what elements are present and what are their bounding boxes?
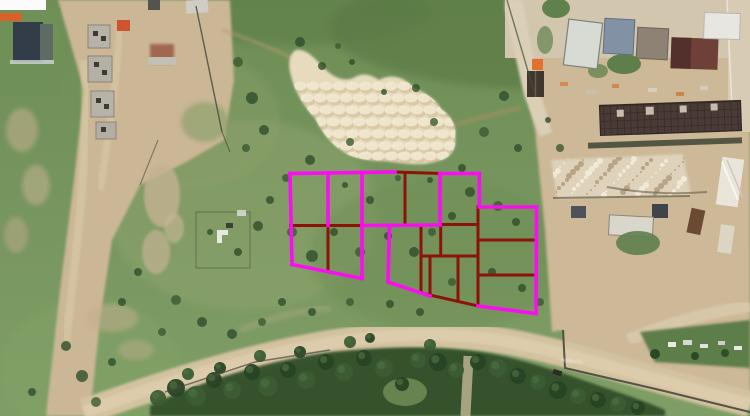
tree-crown-highlight: [633, 403, 639, 409]
orange-roof-strip: [0, 13, 22, 21]
window-hole: [96, 98, 101, 103]
rubble-dot: [647, 180, 649, 182]
marking-dot: [574, 361, 576, 363]
rubble-dot: [563, 162, 565, 164]
debris-dot: [676, 92, 684, 96]
opening: [617, 110, 624, 117]
debris-dot: [586, 90, 596, 94]
tree-crown-highlight: [532, 376, 539, 383]
sand-ripple: [366, 142, 379, 151]
bush: [108, 358, 116, 366]
tree-crown-highlight: [366, 334, 371, 339]
rubble-dot: [585, 170, 591, 176]
bush: [448, 278, 456, 286]
tree-crown-highlight: [346, 338, 351, 343]
white-hut: [217, 235, 222, 243]
bush: [259, 125, 269, 135]
window-hole: [104, 104, 109, 109]
rubble-dot: [571, 192, 573, 194]
dirt-patch: [22, 165, 50, 205]
marking-dot: [566, 360, 569, 363]
bush: [318, 62, 326, 70]
sand-ripple: [405, 142, 418, 151]
bush: [545, 117, 551, 123]
sand-ripple: [327, 118, 340, 127]
bush: [258, 318, 266, 326]
bush: [305, 155, 315, 165]
white-building: [704, 12, 741, 39]
rubble-dot: [659, 168, 661, 170]
vehicle: [668, 342, 676, 347]
dirt-patch: [164, 213, 184, 243]
grass-wedge: [181, 102, 229, 142]
bush: [514, 144, 522, 152]
sand-ripple: [398, 130, 411, 139]
tree-crown-highlight: [472, 356, 479, 363]
tree-crown-highlight: [377, 361, 385, 369]
rubble-dot: [582, 159, 584, 161]
rubble-dot: [622, 169, 626, 173]
wall-edge: [10, 60, 54, 64]
house-annex: [40, 24, 53, 60]
tree-crown-highlight: [261, 379, 270, 388]
debris-dot: [648, 88, 657, 92]
bush: [197, 317, 207, 327]
rubble-dot: [605, 190, 607, 192]
bush: [61, 341, 71, 351]
bush: [295, 37, 305, 47]
bush: [346, 298, 354, 306]
sand-ripple: [346, 82, 359, 91]
tree-crown-highlight: [412, 354, 419, 361]
parcel-boundary-line[interactable]: [362, 225, 440, 226]
sand-ripple: [340, 94, 353, 103]
tree-crown-highlight: [282, 364, 289, 371]
tree: [691, 352, 699, 360]
rubble-dot: [590, 189, 592, 191]
tree-crown-highlight: [592, 394, 599, 401]
bush: [556, 144, 564, 152]
sand-ripple: [372, 106, 385, 115]
rubble-dot: [572, 187, 576, 191]
bush: [458, 164, 466, 172]
sand-ripple: [359, 130, 372, 139]
bush: [207, 229, 213, 235]
maroon-building-dark-half: [670, 37, 691, 69]
tree-crown-highlight: [189, 389, 198, 398]
bush: [118, 298, 126, 306]
vehicle: [718, 341, 725, 345]
sand-ripple: [411, 152, 424, 161]
rubble-dot: [674, 169, 676, 171]
tree-crown-highlight: [296, 348, 301, 353]
bush: [158, 328, 166, 336]
rubble-dot: [561, 182, 565, 186]
window-hole: [94, 62, 99, 67]
vehicle: [734, 346, 742, 350]
sand-ripple: [385, 106, 398, 115]
bush: [227, 329, 237, 339]
window-hole: [102, 70, 107, 75]
rubble-dot: [557, 186, 561, 190]
bush: [134, 268, 142, 276]
rubble-dot: [678, 165, 680, 167]
dirt-patch: [118, 340, 154, 360]
white-warehouse: [563, 19, 602, 69]
sand-ripple: [346, 106, 359, 115]
rubble-dot: [608, 163, 614, 169]
concrete-pad: [148, 57, 176, 65]
sand-ripple: [320, 106, 333, 115]
tree-crown-highlight: [320, 356, 327, 363]
sand-ripple: [333, 82, 346, 91]
grass-pocket: [537, 26, 553, 54]
sand-ripple: [359, 106, 372, 115]
dark-object: [226, 223, 233, 228]
bush: [76, 370, 88, 382]
rubble-dot: [624, 187, 626, 189]
rubble-dot: [626, 165, 630, 169]
orange-building: [532, 59, 543, 70]
parcel-boundary-line[interactable]: [536, 207, 537, 314]
rubble-dot: [655, 172, 657, 174]
bush: [330, 228, 338, 236]
dirt-patch: [6, 108, 38, 152]
rubble-dot: [640, 171, 642, 173]
window-hole: [93, 31, 98, 36]
rubble-dot: [594, 185, 596, 187]
bush: [512, 218, 520, 226]
sand-ripple: [392, 142, 405, 151]
bush: [465, 187, 475, 197]
rubble-dot: [580, 179, 584, 183]
bush: [349, 59, 355, 65]
blue-roof-house: [603, 18, 635, 55]
bush: [395, 175, 401, 181]
bush: [366, 196, 374, 204]
bush: [412, 84, 420, 92]
white-object: [237, 210, 246, 216]
sand-ripple: [372, 152, 385, 161]
sand-ripple: [418, 118, 431, 127]
rubble-dot: [618, 173, 622, 177]
sand-ripple: [379, 118, 392, 127]
sand-ripple: [424, 106, 437, 115]
rubble-dot: [628, 183, 630, 185]
rubble-dot: [576, 183, 580, 187]
sand-ripple: [301, 94, 314, 103]
sand-ripple: [398, 82, 411, 91]
bush: [266, 196, 274, 204]
tree-crown-highlight: [450, 364, 457, 371]
sand-ripple: [424, 130, 437, 139]
sand-ripple: [353, 142, 366, 151]
sand-ripple: [385, 82, 398, 91]
white-hut: [217, 230, 228, 235]
bush: [381, 89, 387, 95]
sand-ripple: [431, 142, 444, 151]
green-yard: [616, 231, 660, 255]
bush: [171, 295, 181, 305]
tree-crown-highlight: [246, 366, 253, 373]
bush: [479, 127, 489, 137]
tree-crown-highlight: [184, 370, 189, 375]
sand-ripple: [385, 130, 398, 139]
orange-shack: [117, 20, 130, 31]
parcel-boundary-line[interactable]: [290, 174, 292, 265]
marking-dot: [579, 361, 582, 364]
rubble-dot: [677, 180, 683, 186]
rubble-dot: [670, 173, 672, 175]
rubble-dot: [559, 166, 561, 168]
lot-line[interactable]: [395, 172, 440, 174]
window-hole: [101, 36, 106, 41]
opening: [646, 107, 654, 115]
tree: [721, 349, 729, 357]
bush: [342, 182, 348, 188]
window-hole: [101, 127, 106, 132]
dark-shack: [148, 0, 160, 10]
sand-ripple: [379, 142, 392, 151]
dirt-patch: [4, 217, 28, 253]
sand-ripple: [366, 94, 379, 103]
bush: [346, 138, 354, 146]
tree-crown-highlight: [431, 355, 439, 363]
bush: [278, 298, 286, 306]
rubble-dot: [603, 172, 607, 176]
rubble-dot: [631, 156, 637, 162]
bush: [233, 57, 243, 67]
tree-crown-highlight: [152, 392, 159, 399]
debris-dot: [560, 82, 568, 86]
sand-ripple: [405, 94, 418, 103]
parcel-boundary-line[interactable]: [290, 172, 395, 174]
bush: [448, 212, 456, 220]
rubble-dot: [651, 176, 653, 178]
satellite-map-viewport[interactable]: [0, 0, 750, 416]
sand-ripple: [340, 118, 353, 127]
bush: [335, 43, 341, 49]
sand-ripple: [411, 106, 424, 115]
parcel-boundary-line[interactable]: [388, 226, 390, 283]
sand-ripple: [392, 118, 405, 127]
bush: [386, 300, 394, 308]
tree-crown-highlight: [512, 370, 519, 377]
rubble-dot: [632, 179, 634, 181]
debris-dot: [700, 86, 708, 90]
sand-ripple: [372, 82, 385, 91]
bush: [253, 221, 263, 231]
bush: [91, 397, 101, 407]
bush: [246, 92, 258, 104]
sand-ripple: [353, 118, 366, 127]
sand-ripple: [392, 94, 405, 103]
rubble-dot: [649, 158, 653, 162]
bush: [499, 91, 509, 101]
rubble-dot: [636, 175, 638, 177]
rubble-dot: [645, 162, 649, 166]
sand-ripple: [314, 94, 327, 103]
bush: [28, 388, 36, 396]
opening: [680, 105, 687, 112]
sand-ripple: [327, 94, 340, 103]
grid-building: [600, 101, 742, 136]
sand-ripple: [353, 94, 366, 103]
sand-ripple: [385, 152, 398, 161]
rubble-dot: [613, 182, 615, 184]
dark-roof-house: [13, 22, 43, 62]
sand-ripple: [437, 130, 450, 139]
tree-crown-highlight: [572, 390, 579, 397]
marking-dot: [562, 359, 565, 362]
sand-ripple: [405, 118, 418, 127]
rubble-dot: [595, 180, 599, 184]
sand-ripple: [398, 106, 411, 115]
sand-ripple: [333, 130, 346, 139]
rubble-dot: [599, 176, 603, 180]
tree-crown-highlight: [225, 383, 233, 391]
bush: [428, 228, 436, 236]
rubble-dot: [617, 178, 619, 180]
tree-crown-highlight: [216, 364, 221, 369]
sand-ripple: [307, 82, 320, 91]
sand-ripple: [418, 142, 431, 151]
sand-ripple: [424, 152, 437, 161]
building-box: [88, 56, 112, 82]
rubble-dot: [664, 159, 668, 163]
sand-ripple: [411, 130, 424, 139]
sand-ripple: [372, 130, 385, 139]
tree-crown-highlight: [491, 361, 499, 369]
bush: [234, 248, 242, 256]
dirt-patch: [142, 230, 170, 274]
bush: [242, 144, 250, 152]
bush: [416, 308, 424, 316]
tree-crown-highlight: [256, 352, 261, 357]
rubble-dot: [566, 173, 572, 179]
ui-edge-strip: [0, 0, 46, 10]
rubble-dot: [660, 163, 664, 167]
sand-ripple: [320, 82, 333, 91]
satellite-map[interactable]: [0, 0, 750, 416]
vehicle: [683, 340, 692, 345]
rubble-dot: [682, 161, 684, 163]
vehicle: [700, 344, 708, 348]
rubble-dot: [586, 193, 588, 195]
opening: [711, 103, 718, 110]
sand-ripple: [398, 152, 411, 161]
sand-ripple: [333, 106, 346, 115]
tree-crown-highlight: [358, 352, 365, 359]
sand-ripple: [359, 82, 372, 91]
building-box: [88, 25, 110, 48]
tree: [650, 349, 660, 359]
tree-crown-highlight: [551, 383, 559, 391]
tree-crown-highlight: [299, 373, 307, 381]
brown-roof-house: [636, 27, 669, 60]
tree-crown-highlight: [397, 379, 403, 385]
bush: [430, 118, 438, 126]
dirt-patch: [86, 304, 138, 332]
tree-crown-highlight: [612, 398, 619, 405]
gray-hut: [571, 206, 586, 218]
sand-ripple: [346, 130, 359, 139]
debris-dot: [612, 84, 619, 88]
bush: [306, 250, 318, 262]
bush: [427, 177, 433, 183]
marking-dot: [570, 360, 573, 363]
sand-ripple: [379, 94, 392, 103]
building-box: [91, 91, 114, 117]
gray-hut: [652, 204, 668, 218]
sand-ripple: [366, 118, 379, 127]
rubble-dot: [641, 166, 645, 170]
bush: [308, 308, 316, 316]
bush: [518, 284, 526, 292]
tree-crown-highlight: [337, 365, 345, 373]
bush: [409, 247, 419, 257]
tree-crown-highlight: [426, 341, 431, 346]
